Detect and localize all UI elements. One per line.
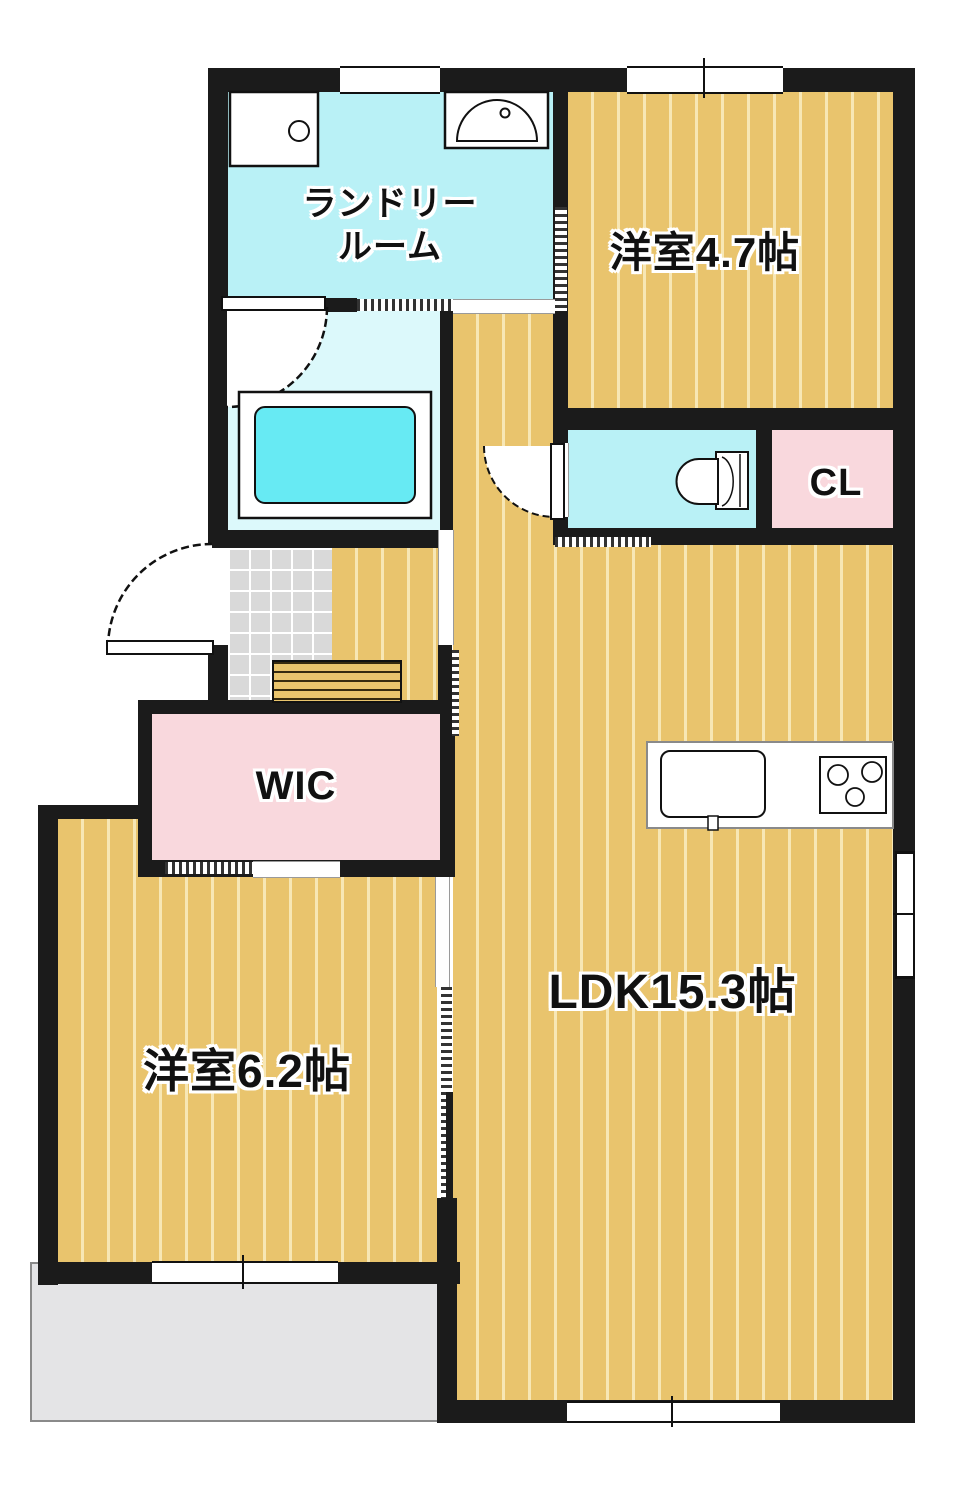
stove-icon (820, 757, 886, 813)
toilet-icon (677, 452, 749, 509)
room-label-laundry: ランドリー ルーム (250, 183, 530, 268)
toilet-door-arc (484, 444, 564, 519)
label-line: ランドリー (250, 183, 530, 226)
room-label-wic: WIC (196, 764, 396, 809)
label-line: ルーム (250, 226, 530, 269)
kitchen-counter (647, 742, 893, 830)
room-label-ldk: LDK15.3帖 (470, 952, 875, 1022)
bath-door-arc (222, 297, 327, 407)
bathtub-icon (239, 392, 431, 518)
sink-icon (445, 92, 548, 148)
entrance-door-arc (107, 544, 213, 654)
room-label-cl: CL (780, 462, 892, 505)
washing-machine-icon (230, 92, 318, 166)
room-label-bedroom-6-2: 洋室6.2帖 (57, 1035, 437, 1101)
floor-plan: ランドリー ルーム 洋室4.7帖 CL WIC 洋室6.2帖 LDK15.3帖 (0, 0, 960, 1495)
room-label-bedroom-4-7: 洋室4.7帖 (540, 219, 870, 280)
